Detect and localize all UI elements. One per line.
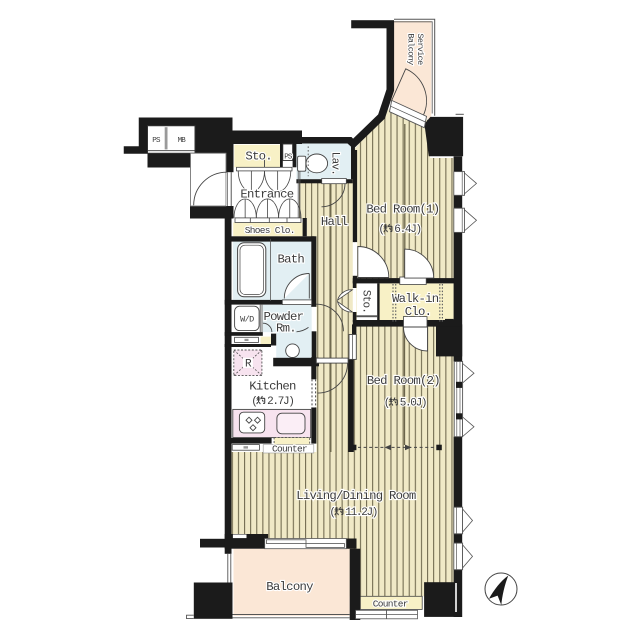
svg-text:Rm.: Rm. xyxy=(276,322,296,336)
svg-text:Bed Room(2): Bed Room(2) xyxy=(367,374,440,388)
svg-text:Bath: Bath xyxy=(278,252,305,266)
svg-text:Balcony: Balcony xyxy=(266,580,313,594)
svg-text:W/D: W/D xyxy=(240,314,254,324)
svg-text:Lav.: Lav. xyxy=(328,152,340,175)
svg-text:Hall: Hall xyxy=(321,215,348,229)
svg-text:(: ( xyxy=(329,507,334,519)
svg-text:Shoes Clo.: Shoes Clo. xyxy=(245,225,295,236)
svg-text:Balcony: Balcony xyxy=(406,33,416,65)
svg-text:Counter: Counter xyxy=(272,444,307,455)
svg-text:MB: MB xyxy=(178,137,187,145)
svg-text:5.0J): 5.0J) xyxy=(400,398,427,410)
svg-text:PS: PS xyxy=(284,154,293,162)
svg-text:Service: Service xyxy=(415,33,425,65)
svg-text:PS: PS xyxy=(152,137,161,145)
svg-text:11.2J): 11.2J) xyxy=(345,507,377,519)
svg-text:Kitchen: Kitchen xyxy=(249,380,296,394)
svg-text:Bed Room(1): Bed Room(1) xyxy=(366,203,439,217)
svg-text:6.4J): 6.4J) xyxy=(394,224,421,236)
svg-text:(: ( xyxy=(378,224,383,236)
svg-text:Sto.: Sto. xyxy=(359,290,371,313)
svg-text:(: ( xyxy=(251,396,256,408)
svg-text:Counter: Counter xyxy=(373,598,408,609)
svg-text:Sto.: Sto. xyxy=(245,150,272,164)
svg-text:Entrance: Entrance xyxy=(240,188,293,202)
svg-text:Living/Dining Room: Living/Dining Room xyxy=(296,489,416,503)
svg-text:Clo.: Clo. xyxy=(405,305,432,319)
svg-text:(: ( xyxy=(384,398,389,410)
svg-text:2.7J): 2.7J) xyxy=(267,396,294,408)
